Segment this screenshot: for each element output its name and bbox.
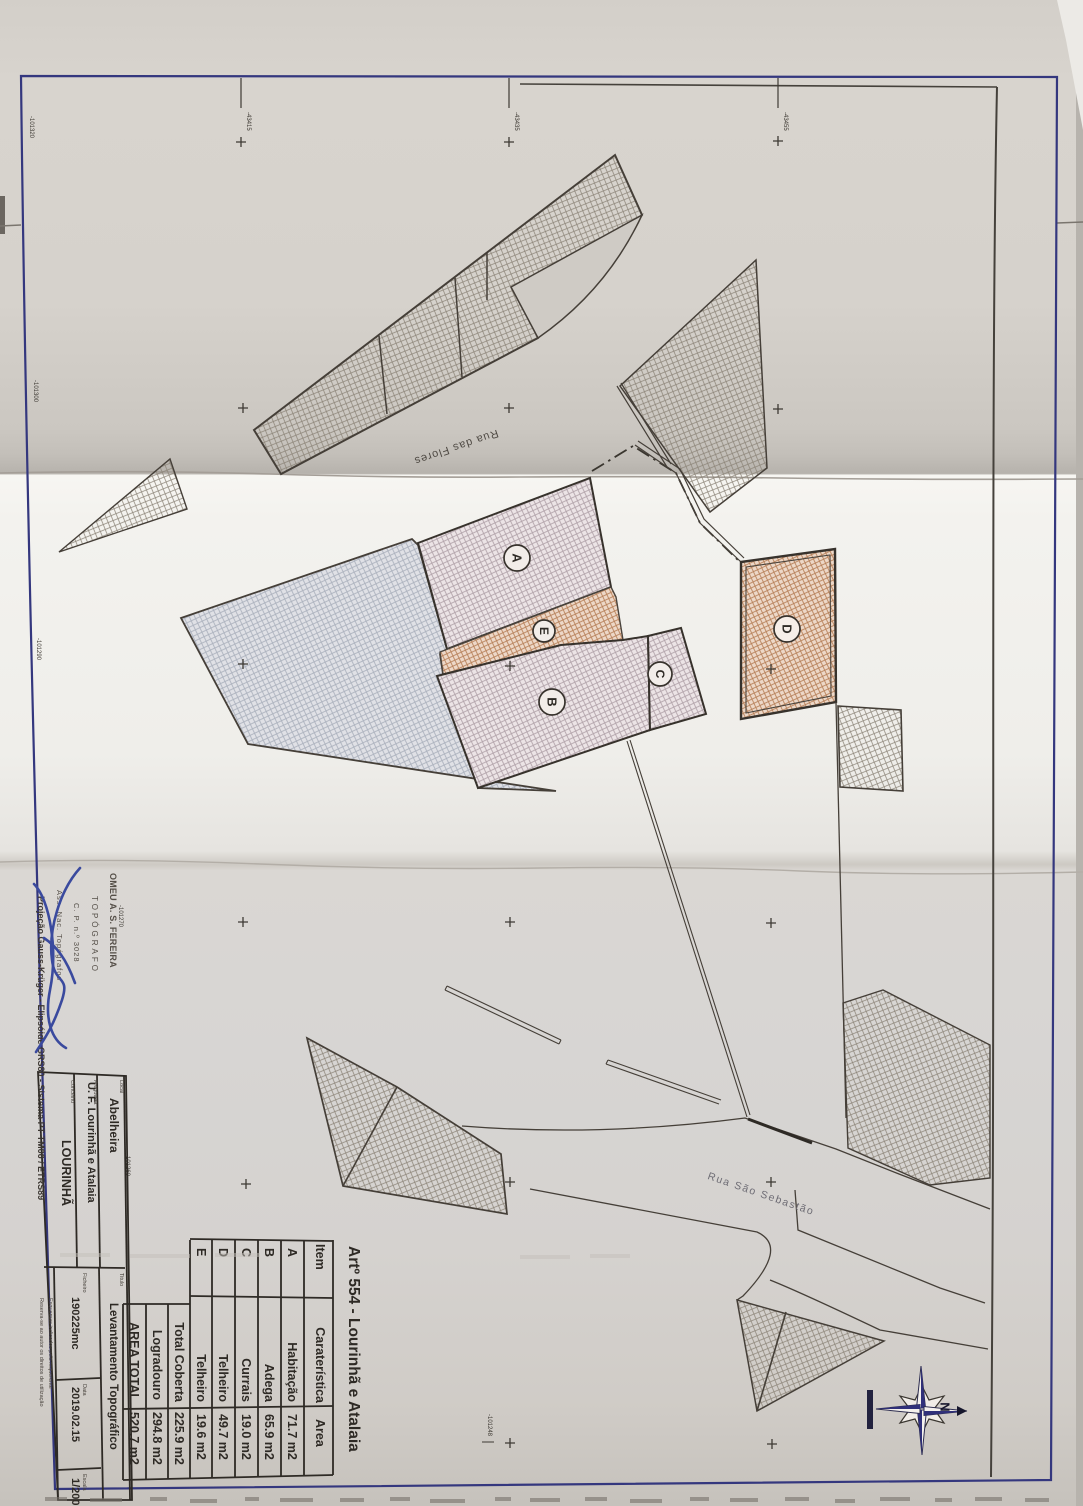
svg-text:2019.02.15: 2019.02.15 [69, 1387, 81, 1442]
svg-text:19.0 m2: 19.0 m2 [239, 1414, 253, 1460]
svg-text:A: A [510, 553, 525, 563]
svg-text:Local: Local [118, 1080, 124, 1093]
svg-text:Total Coberta: Total Coberta [172, 1322, 186, 1403]
svg-text:D: D [780, 624, 795, 633]
svg-text:N: N [938, 1402, 953, 1411]
svg-text:U. F. Lourinhã e Atalaia: U. F. Lourinhã e Atalaia [85, 1082, 97, 1203]
svg-text:Artº 554 - Lourinhã e Atalaia: Artº 554 - Lourinhã e Atalaia [345, 1246, 362, 1452]
svg-text:B: B [545, 697, 560, 706]
svg-text:-43435: -43435 [513, 112, 519, 131]
svg-text:-43415: -43415 [245, 112, 251, 131]
svg-text:Levantamento Topográfico: Levantamento Topográfico [107, 1303, 119, 1450]
svg-text:Currais: Currais [239, 1358, 253, 1402]
svg-text:-101320: -101320 [28, 116, 34, 139]
svg-text:225.9 m2: 225.9 m2 [172, 1412, 186, 1465]
svg-text:Titulo: Titulo [118, 1273, 124, 1286]
svg-text:LOURINHÃ: LOURINHÃ [59, 1140, 74, 1206]
svg-text:1/200: 1/200 [69, 1478, 81, 1506]
svg-text:C: C [653, 670, 667, 679]
svg-text:C. P. n.º 3028: C. P. n.º 3028 [72, 903, 81, 963]
svg-text:A: A [285, 1248, 299, 1257]
svg-text:-101248: -101248 [486, 1414, 492, 1437]
svg-text:Logradouro: Logradouro [150, 1330, 164, 1400]
svg-text:65.9 m2: 65.9 m2 [262, 1414, 276, 1460]
svg-text:Item: Item [313, 1244, 327, 1270]
svg-text:71.7 m2: 71.7 m2 [285, 1414, 299, 1460]
svg-text:-101300: -101300 [32, 380, 38, 403]
svg-text:Esquemas indicados pelo requer: Esquemas indicados pelo requerente [47, 1298, 53, 1389]
svg-text:19.6 m2: 19.6 m2 [194, 1414, 208, 1460]
svg-text:Ficheiro: Ficheiro [81, 1273, 87, 1293]
svg-text:E: E [194, 1248, 208, 1256]
svg-text:Concelho: Concelho [69, 1080, 75, 1103]
svg-text:Abelheira: Abelheira [107, 1098, 121, 1153]
svg-text:190225mc: 190225mc [69, 1297, 81, 1350]
svg-text:Caraterística: Caraterística [313, 1327, 327, 1404]
svg-text:-101290: -101290 [35, 638, 41, 661]
svg-text:Area: Area [313, 1419, 327, 1448]
svg-text:Reserva-se ao autor os direito: Reserva-se ao autor os direitos de utili… [38, 1298, 44, 1407]
svg-text:TOPÓGRAFO: TOPÓGRAFO [90, 896, 99, 974]
svg-text:294.8 m2: 294.8 m2 [150, 1412, 164, 1465]
svg-text:-43455: -43455 [782, 112, 788, 131]
svg-text:B: B [262, 1248, 276, 1257]
svg-text:Telheiro: Telheiro [194, 1354, 208, 1402]
svg-text:49.7 m2: 49.7 m2 [216, 1414, 230, 1460]
svg-text:OMEU A. S. FEREIRA: OMEU A. S. FEREIRA [108, 873, 118, 968]
svg-text:E: E [537, 627, 551, 635]
svg-text:Adega: Adega [262, 1364, 276, 1403]
svg-text:Telheiro: Telheiro [216, 1354, 230, 1402]
svg-text:Habitação: Habitação [285, 1342, 299, 1402]
